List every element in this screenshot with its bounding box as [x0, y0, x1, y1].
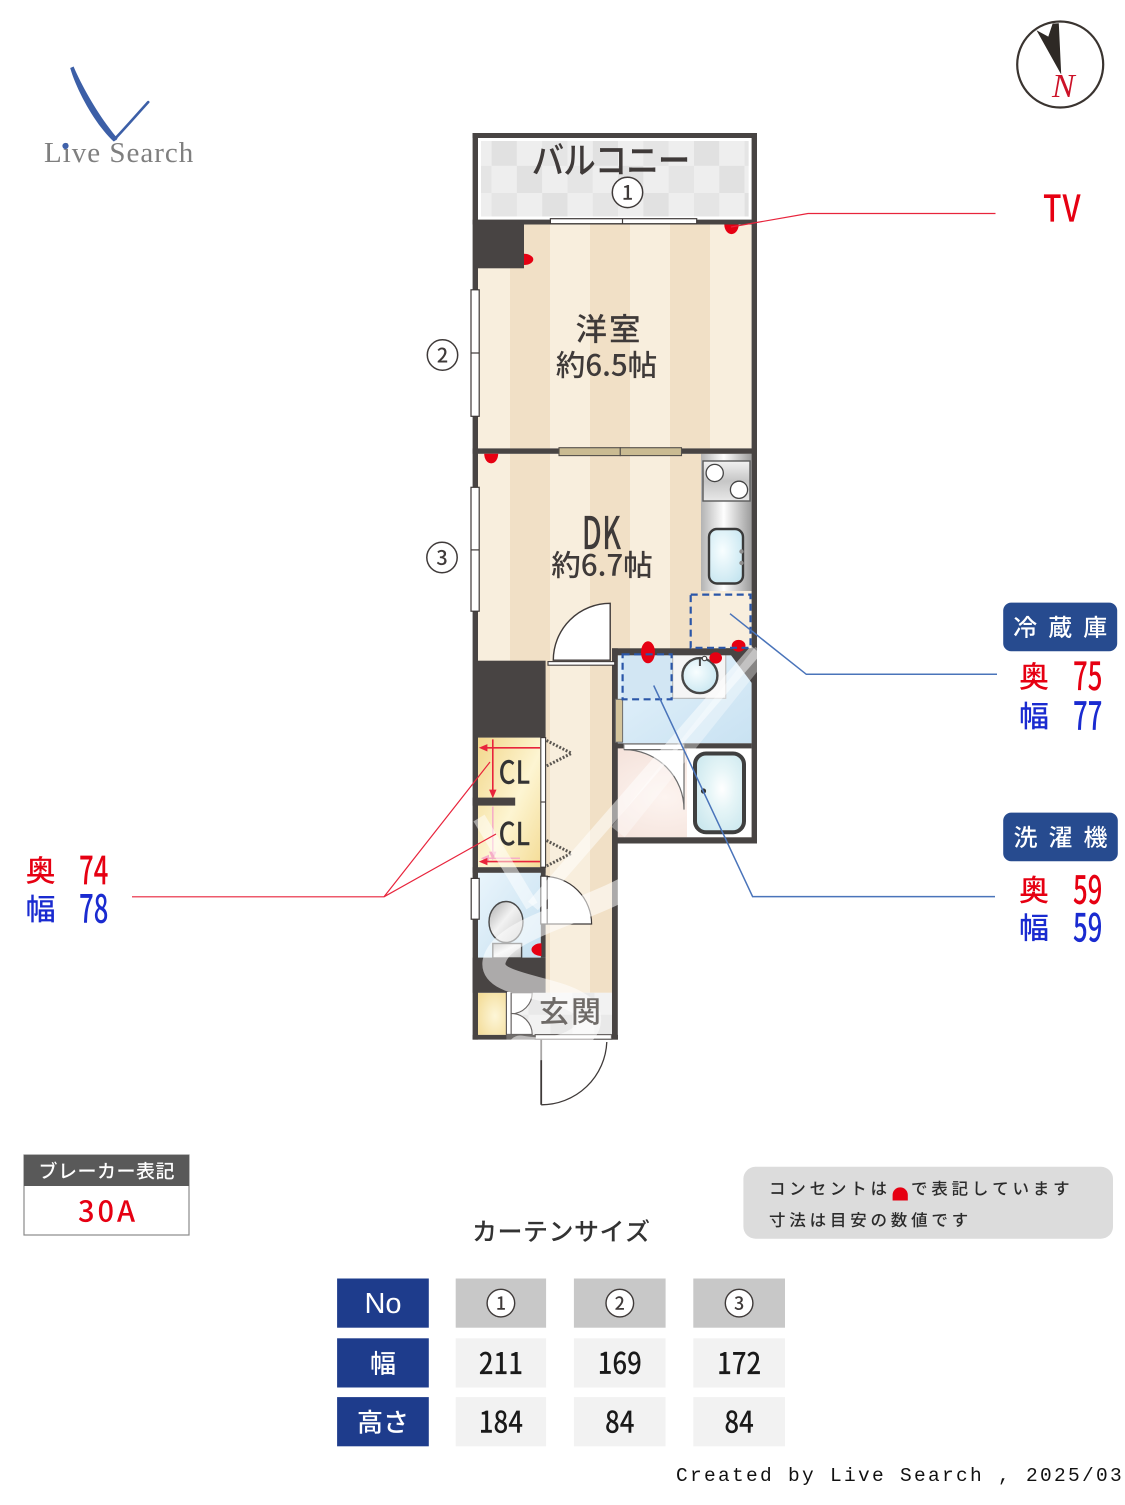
- svg-text:Live Search: Live Search: [44, 137, 194, 169]
- svg-text:No: No: [364, 1288, 401, 1320]
- svg-text:Created by Live Search , 2025/: Created by Live Search , 2025/03: [676, 1465, 1124, 1487]
- svg-text:N: N: [1051, 68, 1077, 105]
